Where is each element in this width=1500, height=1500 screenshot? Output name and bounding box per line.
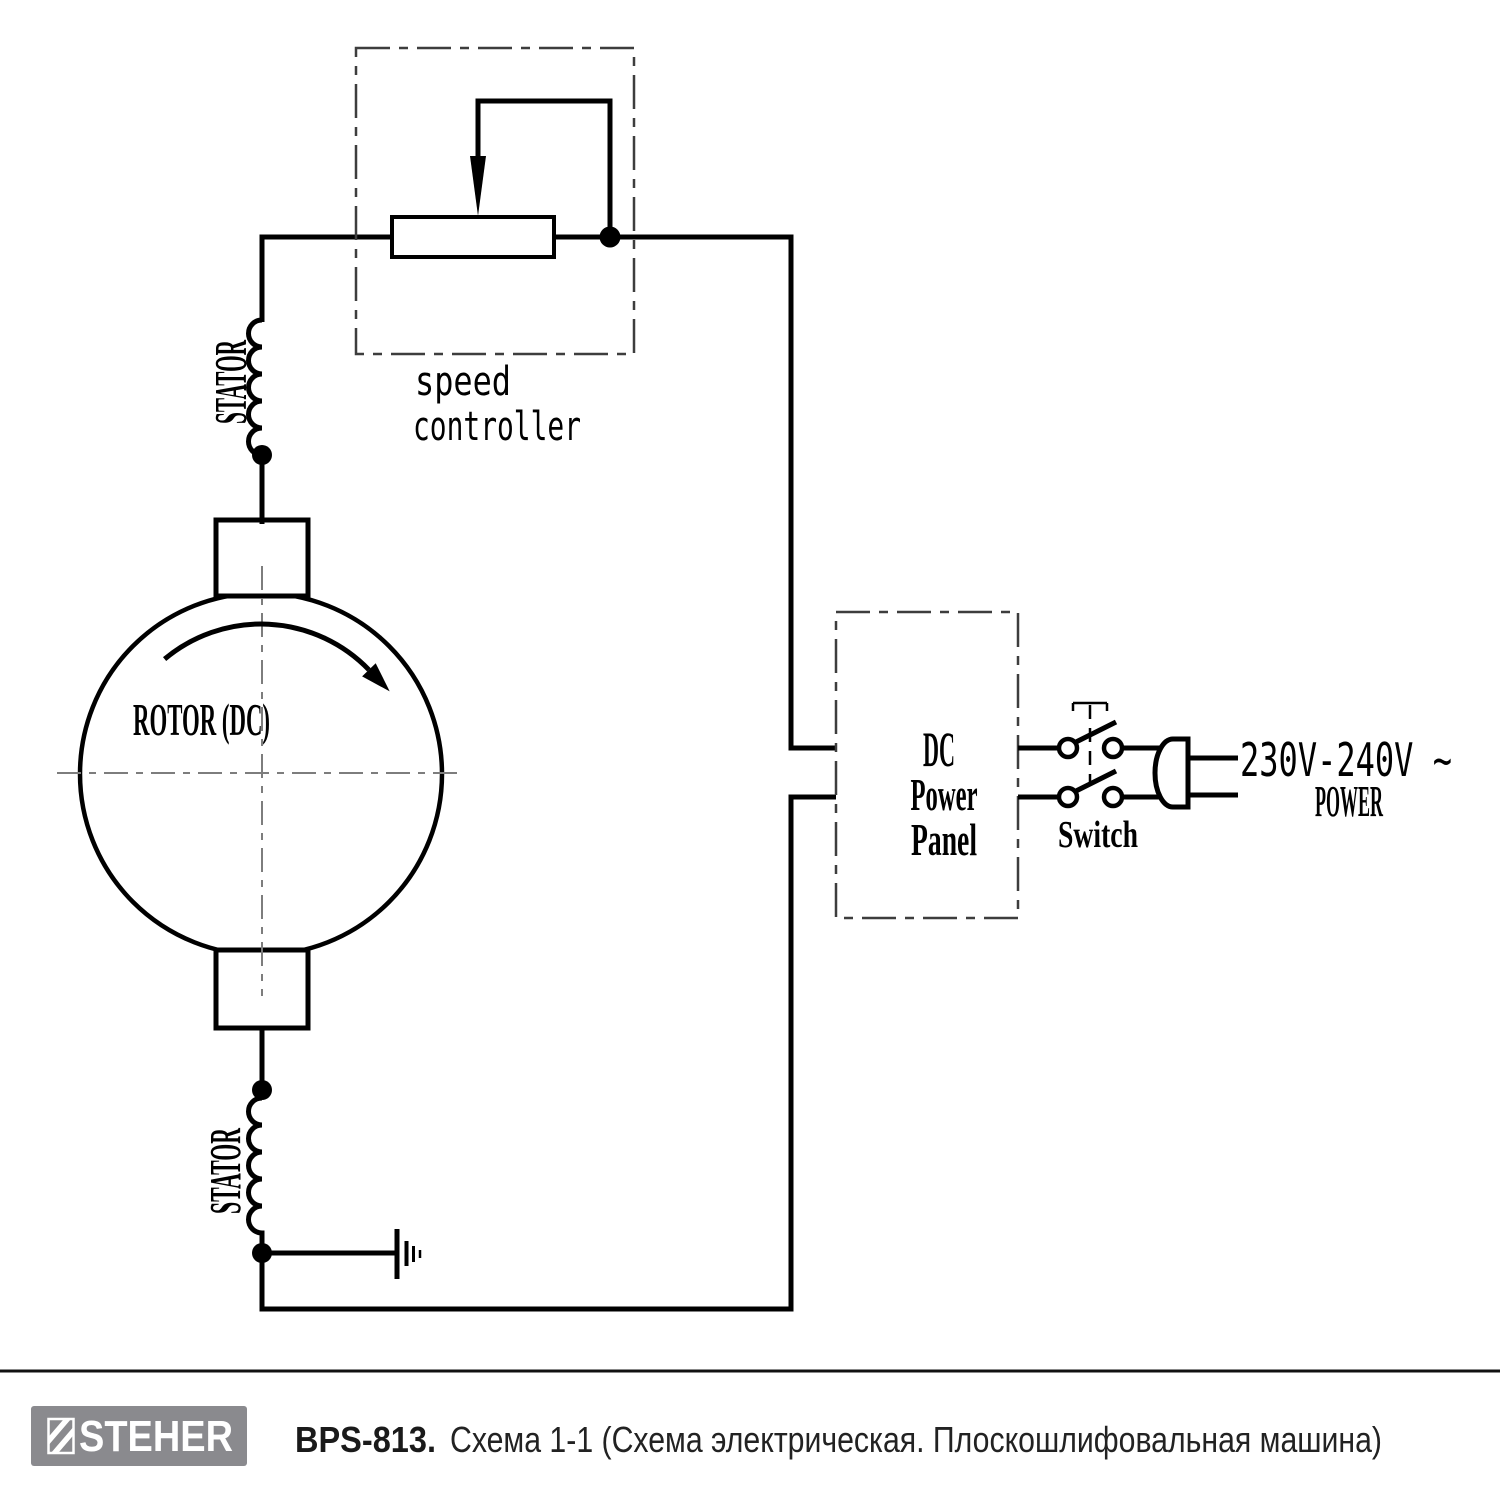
brand-logo: STEHER bbox=[31, 1406, 247, 1466]
wiper-arrow-icon bbox=[470, 156, 486, 216]
speed-controller-label-line2: controller bbox=[413, 404, 581, 450]
stator-top-label: STATOR bbox=[205, 340, 256, 424]
schematic-page: ROTOR (DC) STATOR STATOR speed controlle… bbox=[0, 0, 1500, 1500]
switch-group: Switch bbox=[1018, 703, 1168, 856]
dc-power-panel-group: DC Power Panel bbox=[836, 612, 1018, 918]
switch-contact-top-left bbox=[1059, 739, 1077, 757]
plug-icon bbox=[1155, 739, 1188, 807]
power-label: POWER bbox=[1315, 777, 1383, 826]
power-input-group: 230V-240V ~ POWER bbox=[1155, 733, 1452, 826]
brand-name: STEHER bbox=[79, 1412, 233, 1461]
speed-controller-box bbox=[356, 48, 634, 354]
potentiometer bbox=[392, 217, 554, 257]
footer-caption: Схема 1-1 (Схема электрическая. Плоскошл… bbox=[450, 1419, 1382, 1460]
switch-contact-bottom-right bbox=[1104, 788, 1122, 806]
switch-label: Switch bbox=[1058, 814, 1138, 856]
motor-group: ROTOR (DC) bbox=[57, 520, 465, 1028]
junction-dot-coil-bottom bbox=[252, 1080, 272, 1100]
panel-label-line2: Power bbox=[911, 769, 978, 820]
junction-dot-top bbox=[252, 445, 272, 465]
ground-icon bbox=[397, 1229, 420, 1279]
footer-group: STEHER BPS-813. Схема 1-1 (Схема электри… bbox=[0, 1371, 1500, 1466]
stator-bottom-label: STATOR bbox=[201, 1127, 250, 1214]
stator-coil-bottom bbox=[249, 1098, 263, 1245]
wire-top-left bbox=[262, 237, 392, 322]
speed-controller-label-line1: speed bbox=[415, 359, 511, 405]
panel-label-line3: Panel bbox=[911, 814, 977, 865]
wire-top-trunk bbox=[554, 237, 836, 748]
switch-contact-bottom-left bbox=[1059, 788, 1077, 806]
rotor-label: ROTOR (DC) bbox=[133, 694, 270, 745]
speed-controller-group: speed controller bbox=[356, 48, 634, 450]
footer-model: BPS-813. bbox=[295, 1419, 436, 1460]
switch-contact-top-right bbox=[1104, 739, 1122, 757]
schematic-canvas: ROTOR (DC) STATOR STATOR speed controlle… bbox=[0, 0, 1500, 1500]
ground-group bbox=[262, 1229, 420, 1279]
